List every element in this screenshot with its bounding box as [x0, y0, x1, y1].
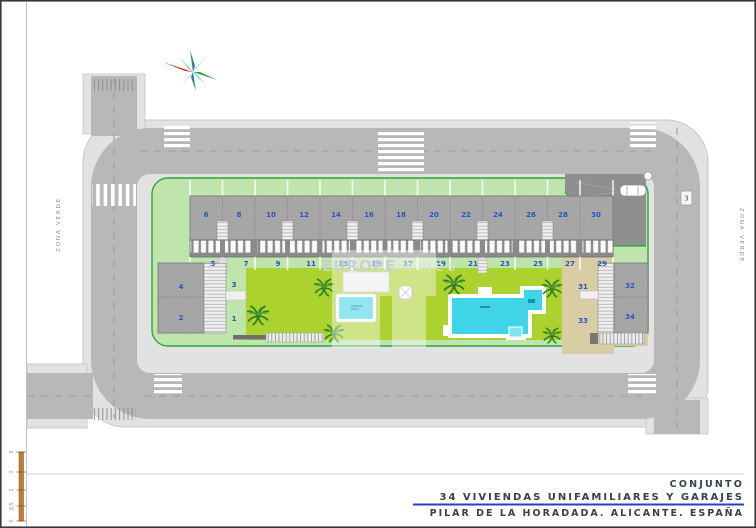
crosswalk-west-road — [92, 184, 136, 206]
garage-ramp — [600, 333, 644, 344]
unit-number: 5 — [211, 260, 216, 268]
scale-tick-label: 5 — [9, 450, 15, 453]
unit-number: 29 — [597, 260, 607, 268]
scale-tick-label: 0.5 — [9, 502, 15, 510]
east-block-stairs — [598, 263, 614, 333]
unit-number: 23 — [500, 260, 510, 268]
crosswalk-top-east — [630, 122, 656, 148]
crosswalk-top-center — [378, 131, 424, 172]
unit-number: 16 — [364, 211, 374, 219]
watermark-brand-secondary: homes — [392, 259, 459, 275]
unit-number: 1 — [232, 315, 237, 323]
site-plan-drawing: 6 8 10 12 14 16 18 20 22 24 26 28 30 5 7… — [0, 0, 756, 528]
unit-number: 31 — [578, 283, 588, 291]
unit-number: 4 — [179, 283, 184, 291]
watermark-brand-primary: EUROPE — [322, 257, 396, 275]
car-top-view-icon — [620, 185, 646, 196]
unit-number: 24 — [493, 211, 503, 219]
crosswalk-top-west — [164, 124, 190, 148]
unit-number: 14 — [331, 211, 341, 219]
unit-number: 6 — [204, 211, 209, 219]
project-type-title: CONJUNTO — [670, 479, 744, 490]
unit-number: 33 — [578, 317, 588, 325]
project-location-title: PILAR DE LA HORADADA. ALICANTE. ESPAÑA — [430, 508, 744, 519]
unit-number: 27 — [565, 260, 575, 268]
project-name-title: 34 VIVIENDAS UNIFAMILIARES Y GARAJES — [440, 492, 744, 503]
zona-verde-label-east: ZONA VERDE — [738, 208, 744, 263]
west-block-stairs — [204, 263, 226, 333]
unit-number: 9 — [276, 260, 281, 268]
west-block-path — [226, 291, 246, 300]
street-number-marker: 3 — [681, 191, 692, 205]
scale-tick-label: 1 — [9, 488, 15, 491]
unit-number: 25 — [533, 260, 543, 268]
unit-number: 3 — [232, 281, 237, 289]
unit-number: 20 — [429, 211, 439, 219]
crosswalk-bottom-west — [154, 374, 182, 395]
east-block-path — [580, 291, 598, 299]
unit-number: 26 — [526, 211, 536, 219]
unit-number: 30 — [591, 211, 601, 219]
unit-number: 22 — [461, 211, 471, 219]
unit-number: 21 — [468, 260, 478, 268]
crosswalk-bottom-east — [628, 374, 656, 395]
zona-verde-label-west: ZONA VERDE — [56, 197, 62, 252]
svg-text:3: 3 — [684, 195, 688, 203]
parking-hatch-south — [92, 408, 136, 420]
roundabout-marker-icon — [644, 172, 652, 180]
unit-number: 8 — [237, 211, 242, 219]
unit-number: 32 — [625, 282, 635, 290]
unit-number: 18 — [396, 211, 406, 219]
unit-number: 34 — [625, 313, 635, 321]
site-plan-sheet: 6 8 10 12 14 16 18 20 22 24 26 28 30 5 7… — [0, 0, 756, 528]
unit-number: 11 — [306, 260, 316, 268]
scale-tick-label: 0 — [9, 519, 15, 522]
unit-number: 10 — [266, 211, 276, 219]
scale-tick-label: 2 — [9, 470, 15, 473]
unit-number: 28 — [558, 211, 568, 219]
unit-number: 12 — [299, 211, 309, 219]
ramp-wall — [590, 333, 598, 344]
unit-number: 7 — [244, 260, 249, 268]
parking-hatch-north — [92, 79, 136, 91]
unit-number: 2 — [179, 314, 184, 322]
